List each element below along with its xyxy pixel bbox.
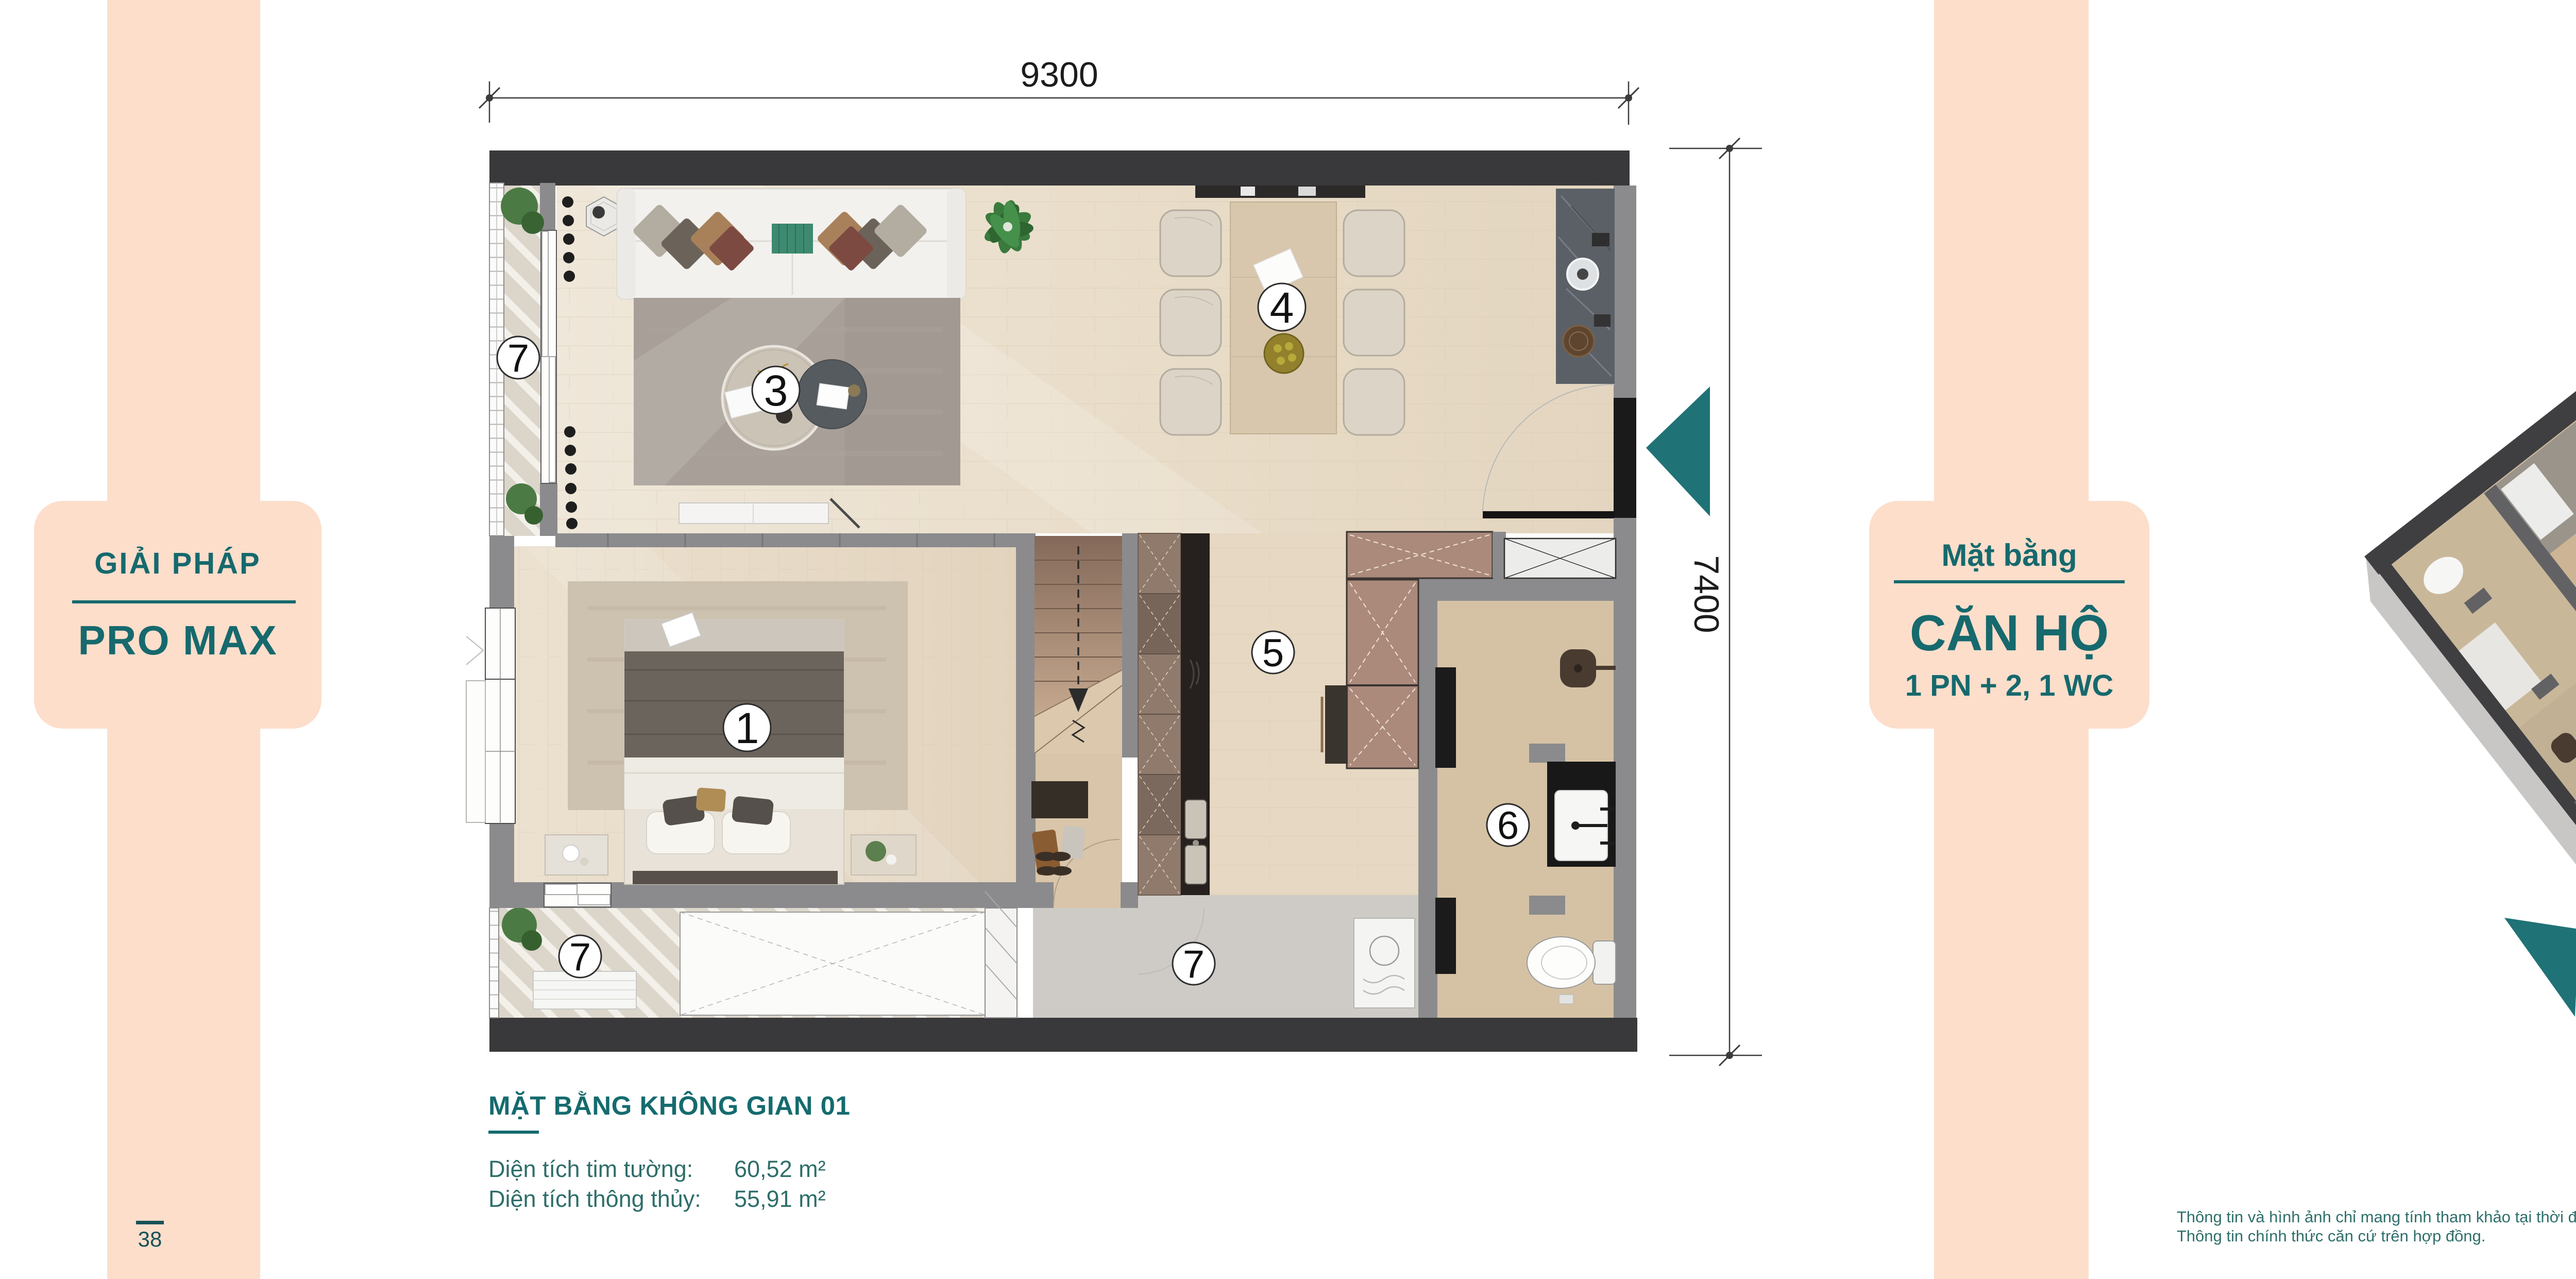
svg-text:Mặt bằng: Mặt bằng <box>1941 538 2077 573</box>
svg-text:7: 7 <box>1183 943 1205 986</box>
svg-text:PRO MAX: PRO MAX <box>78 617 277 663</box>
svg-text:55,91 m²: 55,91 m² <box>734 1186 826 1212</box>
svg-text:Thông tin và hình ảnh chỉ mang: Thông tin và hình ảnh chỉ mang tính tham… <box>2177 1208 2576 1226</box>
svg-text:9300: 9300 <box>1020 55 1098 94</box>
svg-text:7400: 7400 <box>1687 555 1726 633</box>
svg-text:3: 3 <box>764 366 788 415</box>
svg-text:GIẢI PHÁP: GIẢI PHÁP <box>94 547 261 580</box>
svg-text:MẶT BẰNG KHÔNG GIAN 01: MẶT BẰNG KHÔNG GIAN 01 <box>488 1090 850 1120</box>
svg-text:CĂN HỘ: CĂN HỘ <box>1910 604 2109 661</box>
svg-text:7: 7 <box>507 336 529 380</box>
svg-text:38: 38 <box>138 1227 162 1251</box>
svg-text:Thông tin chính thức căn cứ tr: Thông tin chính thức căn cứ trên hợp đồn… <box>2177 1227 2486 1245</box>
svg-text:60,52 m²: 60,52 m² <box>734 1156 826 1182</box>
svg-text:1 PN + 2, 1 WC: 1 PN + 2, 1 WC <box>1905 669 2114 702</box>
svg-text:Diện tích thông thủy:: Diện tích thông thủy: <box>488 1186 701 1212</box>
svg-text:Diện tích tim tường:: Diện tích tim tường: <box>488 1156 693 1182</box>
svg-text:1: 1 <box>735 704 759 752</box>
svg-text:5: 5 <box>1262 631 1284 675</box>
svg-text:6: 6 <box>1497 804 1519 848</box>
svg-text:4: 4 <box>1270 283 1294 332</box>
svg-text:7: 7 <box>569 935 591 979</box>
